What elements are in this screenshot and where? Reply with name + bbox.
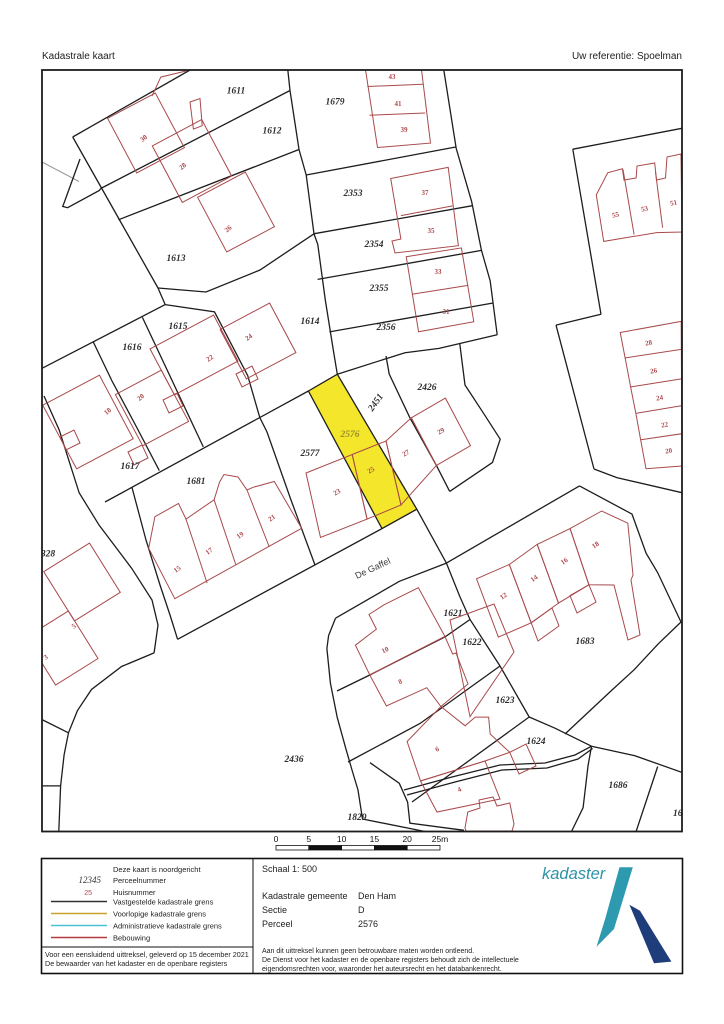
svg-text:1614: 1614: [301, 317, 320, 327]
svg-text:2353: 2353: [343, 189, 363, 199]
svg-text:2436: 2436: [284, 755, 304, 765]
svg-text:Perceel: Perceel: [262, 919, 293, 929]
svg-text:12345: 12345: [79, 875, 102, 885]
svg-text:0: 0: [274, 834, 279, 844]
svg-text:D: D: [358, 905, 365, 915]
svg-text:Perceelnummer: Perceelnummer: [113, 876, 166, 885]
svg-text:25m: 25m: [432, 834, 449, 844]
svg-text:5: 5: [306, 834, 311, 844]
svg-text:2354: 2354: [364, 240, 384, 250]
svg-text:Kadastrale kaart: Kadastrale kaart: [42, 51, 115, 62]
svg-text:39: 39: [401, 126, 409, 134]
svg-text:1681: 1681: [187, 477, 206, 487]
svg-text:Uw referentie: Spoelman: Uw referentie: Spoelman: [572, 51, 682, 62]
svg-text:33: 33: [435, 268, 443, 276]
svg-text:Deze kaart is noordgericht: Deze kaart is noordgericht: [113, 865, 201, 874]
svg-text:41: 41: [395, 100, 403, 108]
svg-text:Vastgestelde kadastrale grens: Vastgestelde kadastrale grens: [113, 898, 214, 907]
svg-text:2576: 2576: [340, 430, 360, 440]
svg-text:1679: 1679: [326, 98, 345, 108]
svg-text:1621: 1621: [444, 609, 463, 619]
svg-text:1683: 1683: [576, 637, 595, 647]
svg-text:De Dienst voor het kadaster en: De Dienst voor het kadaster en de openba…: [262, 957, 519, 964]
svg-text:eigendomsrechten voor, waarond: eigendomsrechten voor, waaronder het aut…: [262, 966, 502, 973]
svg-text:Den Ham: Den Ham: [358, 891, 396, 901]
svg-text:1613: 1613: [167, 254, 186, 264]
svg-text:1617: 1617: [121, 462, 141, 472]
svg-text:De bewaarder van het kadaster: De bewaarder van het kadaster en de open…: [45, 959, 228, 968]
svg-text:Aan dit uittreksel kunnen geen: Aan dit uittreksel kunnen geen betrouwba…: [262, 948, 474, 955]
svg-text:1612: 1612: [263, 127, 282, 137]
svg-text:Voorlopige kadastrale grens: Voorlopige kadastrale grens: [113, 910, 206, 919]
svg-text:31: 31: [443, 308, 451, 316]
svg-text:Bebouwing: Bebouwing: [113, 934, 150, 943]
svg-text:2355: 2355: [369, 284, 389, 294]
svg-text:2356: 2356: [376, 323, 396, 333]
svg-text:20: 20: [402, 834, 412, 844]
svg-text:kadaster: kadaster: [542, 865, 607, 883]
svg-text:1623: 1623: [496, 696, 515, 706]
svg-text:1616: 1616: [123, 343, 142, 353]
svg-text:10: 10: [337, 834, 347, 844]
svg-text:1611: 1611: [227, 87, 245, 97]
svg-text:1624: 1624: [527, 737, 546, 747]
svg-text:43: 43: [389, 73, 397, 81]
svg-text:Voor een eensluidend uittrekse: Voor een eensluidend uittreksel, gelever…: [45, 950, 249, 959]
svg-text:Huisnummer: Huisnummer: [113, 888, 156, 897]
svg-text:1686: 1686: [609, 781, 628, 791]
svg-text:1622: 1622: [463, 638, 482, 648]
svg-text:2426: 2426: [417, 383, 437, 393]
svg-text:2577: 2577: [300, 449, 321, 459]
svg-text:2576: 2576: [358, 919, 378, 929]
svg-text:Sectie: Sectie: [262, 905, 287, 915]
svg-text:1615: 1615: [169, 322, 188, 332]
svg-text:Administratieve kadastrale gre: Administratieve kadastrale grens: [113, 922, 222, 931]
svg-text:25: 25: [84, 890, 92, 897]
svg-text:35: 35: [428, 227, 436, 235]
svg-text:37: 37: [422, 189, 430, 197]
svg-text:1829: 1829: [348, 813, 367, 823]
svg-text:15: 15: [370, 834, 380, 844]
svg-text:Kadastrale gemeente: Kadastrale gemeente: [262, 891, 348, 901]
svg-text:Schaal 1: 500: Schaal 1: 500: [262, 864, 317, 874]
